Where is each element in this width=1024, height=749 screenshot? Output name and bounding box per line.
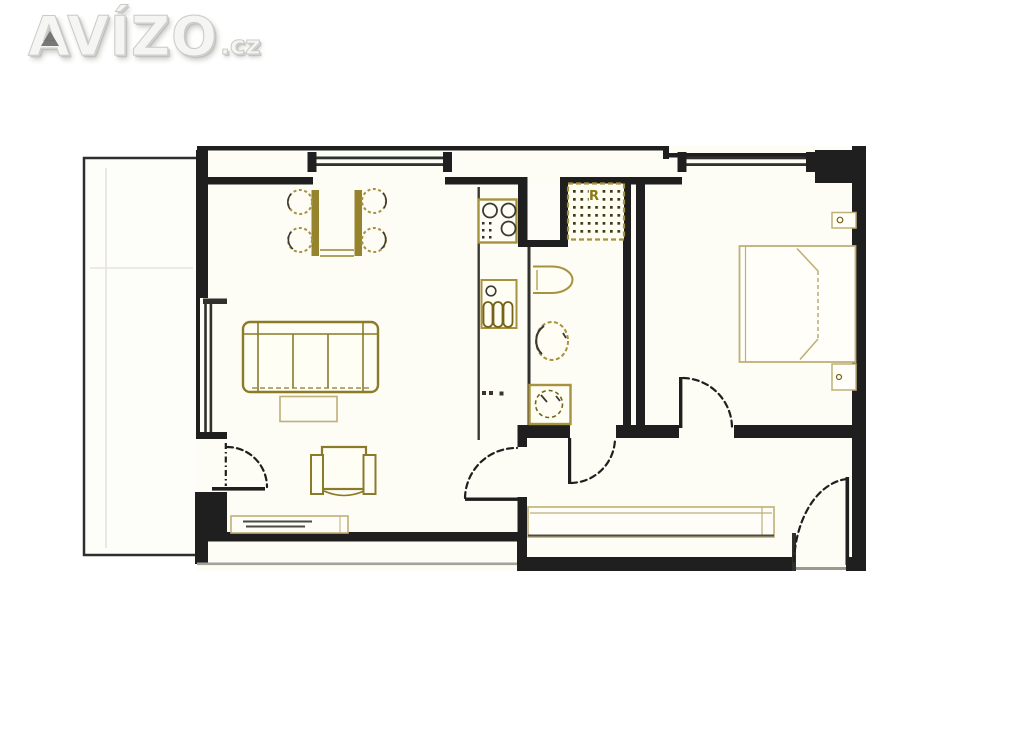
- sink-unit: [482, 280, 517, 328]
- floor-plan: R: [0, 0, 1024, 749]
- sideboard: [231, 516, 348, 533]
- double-bed: [740, 246, 856, 362]
- toilet: [536, 322, 568, 360]
- shower: [530, 385, 571, 424]
- nightstand: [832, 364, 856, 390]
- nightstand: [832, 213, 856, 229]
- wardrobe: [528, 507, 774, 537]
- armchair: [311, 447, 376, 496]
- stove-cooktop: [479, 200, 517, 243]
- wash-basin: [533, 267, 573, 294]
- sofa: [243, 322, 378, 392]
- balcony: [84, 158, 197, 555]
- washer-label: R: [589, 189, 599, 204]
- washing-machine: R: [568, 184, 624, 240]
